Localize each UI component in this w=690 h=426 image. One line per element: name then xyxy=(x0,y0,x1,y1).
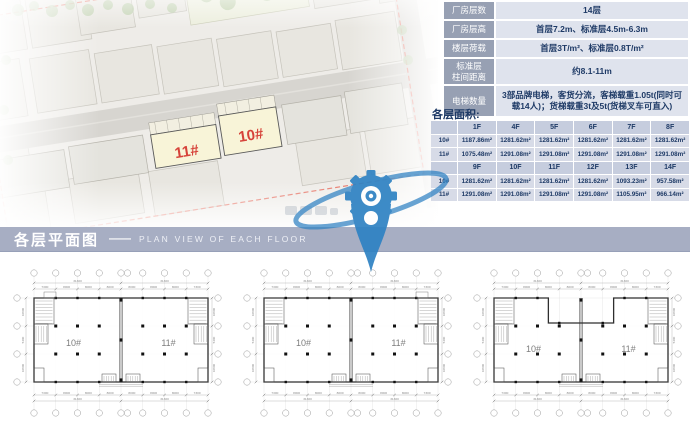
plan-unit-label-right: 11# xyxy=(621,344,635,354)
area-cell: 1291.08m² xyxy=(651,148,689,161)
svg-text:10800: 10800 xyxy=(672,363,676,372)
svg-text:10800: 10800 xyxy=(442,307,446,316)
svg-text:7300: 7300 xyxy=(501,285,508,289)
svg-text:8000: 8000 xyxy=(632,391,639,395)
svg-text:31300: 31300 xyxy=(620,397,629,401)
svg-text:10800: 10800 xyxy=(481,363,485,372)
area-cell: 1291.08m² xyxy=(497,148,535,161)
svg-text:10800: 10800 xyxy=(251,363,255,372)
area-cell: 1281.62m² xyxy=(535,135,573,148)
svg-text:31300: 31300 xyxy=(160,279,169,283)
svg-text:31300: 31300 xyxy=(73,279,82,283)
spec-value: 3部品牌电梯，客货分流，客梯载重1.05t(同时可载14人)；货梯载重3t及5t… xyxy=(496,86,688,116)
svg-text:8000: 8000 xyxy=(337,285,344,289)
area-col-header: 4F xyxy=(497,121,535,134)
svg-text:8000: 8000 xyxy=(523,391,530,395)
area-col-header: 13F xyxy=(613,162,651,175)
svg-text:31300: 31300 xyxy=(533,279,542,283)
plan-unit-label-right: 11# xyxy=(161,338,175,348)
area-col-header: 8F xyxy=(651,121,689,134)
svg-text:31300: 31300 xyxy=(390,397,399,401)
floor-plan-2: 7300800080008000800080008000730031300313… xyxy=(240,262,454,422)
svg-text:7300: 7300 xyxy=(271,285,278,289)
svg-text:8000: 8000 xyxy=(545,391,552,395)
svg-text:8000: 8000 xyxy=(107,285,114,289)
banner-dash: —— xyxy=(109,233,131,245)
area-col-header: 5F xyxy=(535,121,573,134)
svg-text:8000: 8000 xyxy=(315,285,322,289)
svg-text:8000: 8000 xyxy=(128,391,135,395)
svg-text:8000: 8000 xyxy=(293,285,300,289)
svg-text:7300: 7300 xyxy=(194,391,201,395)
area-col-header: 1F xyxy=(458,121,496,134)
area-col-header: 7F xyxy=(613,121,651,134)
area-cell: 1281.62m² xyxy=(535,175,573,188)
spec-row: 电梯数量 3部品牌电梯，客货分流，客梯载重1.05t(同时可载14人)；货梯载重… xyxy=(444,86,688,116)
area-cell: 1291.08m² xyxy=(574,148,612,161)
svg-text:8000: 8000 xyxy=(172,391,179,395)
svg-text:8000: 8000 xyxy=(358,391,365,395)
area-cell: 1281.62m² xyxy=(613,135,651,148)
area-col-header: 10F xyxy=(497,162,535,175)
svg-text:8000: 8000 xyxy=(150,285,157,289)
svg-text:10800: 10800 xyxy=(442,363,446,372)
svg-text:7300: 7300 xyxy=(271,391,278,395)
plan-unit-label-right: 11# xyxy=(391,338,405,348)
plan-unit-label-left: 10# xyxy=(66,338,81,348)
banner-title: 各层平面图 xyxy=(14,229,99,250)
area-cell: 1093.23m² xyxy=(613,175,651,188)
page: 11# 10# 厂房层数 14层 厂房层高 首层7.2m、标准层4.5m-6.3… xyxy=(0,0,690,426)
area-cell: 966.14m² xyxy=(651,189,689,202)
svg-text:8000: 8000 xyxy=(85,285,92,289)
area-cell: 1281.62m² xyxy=(574,135,612,148)
svg-text:8000: 8000 xyxy=(63,391,70,395)
spec-value: 约8.1-11m xyxy=(496,59,688,84)
spec-row: 厂房层数 14层 xyxy=(444,2,688,19)
spec-label: 楼层荷载 xyxy=(444,40,494,57)
svg-text:7300: 7300 xyxy=(424,285,431,289)
area-cell: 1281.62m² xyxy=(574,175,612,188)
svg-text:7300: 7300 xyxy=(194,285,201,289)
spec-table: 厂房层数 14层 厂房层高 首层7.2m、标准层4.5m-6.3m 楼层荷载 首… xyxy=(444,2,688,116)
svg-text:10800: 10800 xyxy=(21,307,25,316)
area-table-row: 11#1291.08m²1291.08m²1291.08m²1291.08m²1… xyxy=(431,189,689,202)
svg-text:8000: 8000 xyxy=(150,391,157,395)
svg-text:8000: 8000 xyxy=(545,285,552,289)
spec-label: 厂房层高 xyxy=(444,21,494,38)
spec-row: 楼层荷载 首层3T/m²、标准层0.8T/m² xyxy=(444,40,688,57)
svg-text:8000: 8000 xyxy=(107,391,114,395)
area-cell: 957.58m² xyxy=(651,175,689,188)
area-col-header: 12F xyxy=(574,162,612,175)
plan-unit-label-left: 10# xyxy=(296,338,311,348)
svg-text:8000: 8000 xyxy=(293,391,300,395)
svg-text:10800: 10800 xyxy=(672,307,676,316)
area-table: 1F4F5F6F7F8F10#1187.86m²1281.62m²1281.62… xyxy=(430,120,690,202)
spec-value: 首层3T/m²、标准层0.8T/m² xyxy=(496,40,688,57)
area-col-header: 14F xyxy=(651,162,689,175)
svg-text:7300: 7300 xyxy=(41,391,48,395)
svg-text:31300: 31300 xyxy=(160,397,169,401)
svg-text:8000: 8000 xyxy=(380,285,387,289)
area-cell: 1281.62m² xyxy=(651,135,689,148)
svg-text:31300: 31300 xyxy=(73,397,82,401)
area-cell: 1291.08m² xyxy=(535,189,573,202)
svg-text:10800: 10800 xyxy=(212,363,216,372)
svg-text:8000: 8000 xyxy=(315,391,322,395)
area-col-header: 9F xyxy=(458,162,496,175)
svg-text:8000: 8000 xyxy=(358,285,365,289)
area-table-row: 9F10F11F12F13F14F xyxy=(431,162,689,175)
plan-unit-label-left: 10# xyxy=(526,344,541,354)
svg-text:8000: 8000 xyxy=(380,391,387,395)
svg-text:10800: 10800 xyxy=(481,307,485,316)
spec-value: 首层7.2m、标准层4.5m-6.3m xyxy=(496,21,688,38)
svg-text:5400: 5400 xyxy=(672,336,676,343)
svg-text:8000: 8000 xyxy=(588,285,595,289)
svg-text:8000: 8000 xyxy=(610,285,617,289)
area-table-row: 10#1187.86m²1281.62m²1281.62m²1281.62m²1… xyxy=(431,135,689,148)
svg-text:8000: 8000 xyxy=(402,391,409,395)
svg-text:10800: 10800 xyxy=(251,307,255,316)
floor-plan-3: 7300800080008000800080008000730031300313… xyxy=(470,262,684,422)
svg-text:7300: 7300 xyxy=(654,285,661,289)
svg-text:8000: 8000 xyxy=(172,285,179,289)
area-cell: 1291.08m² xyxy=(613,148,651,161)
svg-text:31300: 31300 xyxy=(620,279,629,283)
area-col-header: 6F xyxy=(574,121,612,134)
svg-text:8000: 8000 xyxy=(63,285,70,289)
area-cell: 1291.08m² xyxy=(497,189,535,202)
spec-label: 厂房层数 xyxy=(444,2,494,19)
area-cell: 1281.62m² xyxy=(497,135,535,148)
area-table-row: 11#1075.48m²1291.08m²1291.08m²1291.08m²1… xyxy=(431,148,689,161)
area-cell: 1187.86m² xyxy=(458,135,496,148)
svg-text:5400: 5400 xyxy=(251,336,255,343)
svg-text:7300: 7300 xyxy=(501,391,508,395)
area-row-label: 10# xyxy=(431,135,457,148)
svg-text:10800: 10800 xyxy=(212,307,216,316)
svg-text:5400: 5400 xyxy=(212,336,216,343)
spec-row: 标准层 柱间距离 约8.1-11m xyxy=(444,59,688,84)
area-cell: 1291.08m² xyxy=(535,148,573,161)
spec-row: 厂房层高 首层7.2m、标准层4.5m-6.3m xyxy=(444,21,688,38)
spec-label: 标准层 柱间距离 xyxy=(444,59,494,84)
svg-text:7300: 7300 xyxy=(41,285,48,289)
area-col-header: 11F xyxy=(535,162,573,175)
svg-text:8000: 8000 xyxy=(337,391,344,395)
svg-text:8000: 8000 xyxy=(632,285,639,289)
area-cell: 1075.48m² xyxy=(458,148,496,161)
area-cell: 1291.08m² xyxy=(574,189,612,202)
area-cell: 1291.08m² xyxy=(458,189,496,202)
svg-text:8000: 8000 xyxy=(402,285,409,289)
svg-text:8000: 8000 xyxy=(610,391,617,395)
svg-text:7300: 7300 xyxy=(424,391,431,395)
area-cell: 1281.62m² xyxy=(458,175,496,188)
svg-text:8000: 8000 xyxy=(567,285,574,289)
svg-text:10800: 10800 xyxy=(21,363,25,372)
watermark-gear-pin-icon xyxy=(283,148,458,283)
svg-text:8000: 8000 xyxy=(588,391,595,395)
svg-text:8000: 8000 xyxy=(523,285,530,289)
svg-text:8000: 8000 xyxy=(85,391,92,395)
svg-text:8000: 8000 xyxy=(128,285,135,289)
svg-text:31300: 31300 xyxy=(533,397,542,401)
area-cell: 1105.95m² xyxy=(613,189,651,202)
area-col-header xyxy=(431,121,457,134)
area-table-row: 10#1281.62m²1281.62m²1281.62m²1281.62m²1… xyxy=(431,175,689,188)
area-table-row: 1F4F5F6F7F8F xyxy=(431,121,689,134)
svg-text:8000: 8000 xyxy=(567,391,574,395)
svg-text:5400: 5400 xyxy=(21,336,25,343)
spec-value: 14层 xyxy=(496,2,688,19)
area-cell: 1281.62m² xyxy=(497,175,535,188)
svg-text:7300: 7300 xyxy=(654,391,661,395)
svg-text:5400: 5400 xyxy=(481,336,485,343)
floor-plan-1: 7300800080008000800080008000730031300313… xyxy=(10,262,224,422)
svg-text:31300: 31300 xyxy=(303,397,312,401)
svg-text:5400: 5400 xyxy=(442,336,446,343)
